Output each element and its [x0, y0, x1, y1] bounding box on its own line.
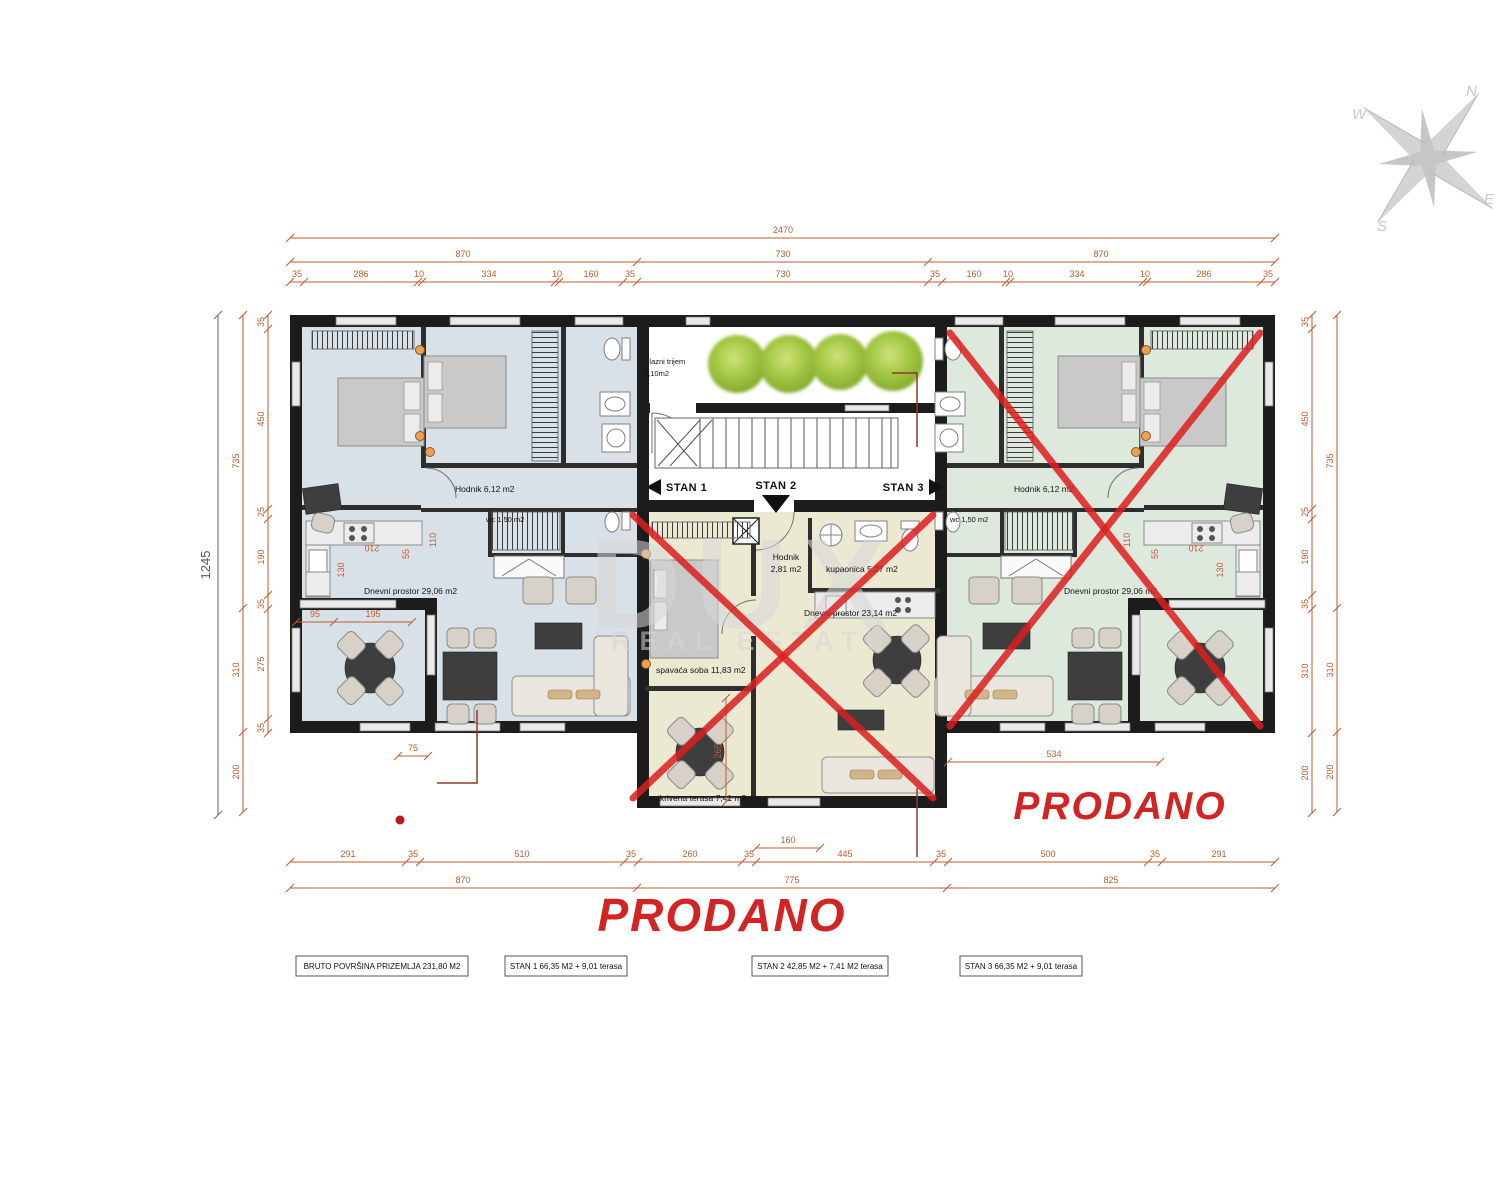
dim: 450: [256, 411, 266, 426]
dim: 310: [231, 662, 241, 677]
dim: 870: [455, 249, 470, 259]
dim: 500: [1040, 849, 1055, 859]
dim: 286: [353, 269, 368, 279]
dim: 10: [1003, 269, 1013, 279]
entrance-planter-trees: [708, 331, 923, 393]
dim: 275: [256, 656, 266, 671]
dim: 510: [514, 849, 529, 859]
lamp-icon: [1132, 448, 1141, 457]
dim: 75: [408, 743, 418, 753]
footer-labels: BRUTO POVRŠINA PRIZEMLJA 231,80 M2 STAN …: [296, 956, 1082, 976]
floor-plan-page: DUX REAL ESTATE Ulazni trijem 2,10m2 Hod…: [0, 0, 1500, 1180]
dim: 35: [936, 849, 946, 859]
armchair: [969, 577, 999, 604]
fridge: [306, 572, 330, 596]
porch-label: Ulazni trijem: [644, 357, 685, 366]
dim: 190: [256, 549, 266, 564]
desk: [302, 484, 341, 515]
dim: 35: [256, 723, 266, 733]
stan1-pointer-label: STAN 1: [666, 482, 707, 494]
porch-area: 2,10m2: [644, 369, 669, 378]
dim: 35: [625, 269, 635, 279]
dim: 35: [626, 849, 636, 859]
stan2-spavaca-label: spavaća soba 11,83 m2: [656, 665, 746, 675]
dim: 291: [340, 849, 355, 859]
tree-icon: [708, 335, 766, 393]
dim: 95: [310, 609, 320, 619]
prodano-center-label: PRODANO: [597, 889, 846, 941]
dim: 35: [256, 599, 266, 609]
dim: 35: [1300, 317, 1310, 327]
stan1-dnevni-label: Dnevni prostor 29,06 m2: [364, 586, 457, 596]
tree-icon: [812, 334, 868, 390]
footer-stan1-label: STAN 1 66,35 M2 + 9,01 terasa: [510, 962, 623, 971]
toilet: [604, 338, 620, 360]
floor-plan-drawing: DUX REAL ESTATE Ulazni trijem 2,10m2 Hod…: [0, 0, 1500, 1180]
dim: 55: [1150, 549, 1160, 559]
footer-stan3-label: STAN 3 66,35 M2 + 9,01 terasa: [965, 962, 1078, 971]
lamp-icon: [1142, 346, 1151, 355]
red-dot: [396, 816, 405, 825]
dim: 200: [1325, 764, 1335, 779]
desk: [1223, 484, 1262, 515]
dim: 735: [231, 453, 241, 468]
compass-s: S: [1377, 218, 1387, 235]
dim: 160: [583, 269, 598, 279]
stan2-hodnik-area: 2,81 m2: [771, 564, 802, 574]
dim: 35: [408, 849, 418, 859]
footer-stan2-label: STAN 2 42,85 M2 + 7,41 M2 terasa: [757, 962, 883, 971]
dim: 10: [1140, 269, 1150, 279]
dimensions-top: 2470 870 730 870 35 286 10 334 10 160 35…: [286, 225, 1279, 286]
stan1-hodnik-label: Hodnik 6,12 m2: [455, 484, 515, 494]
prodano-right-label: PRODANO: [1013, 785, 1226, 828]
dim: 450: [1300, 411, 1310, 426]
fridge: [1236, 572, 1260, 596]
dim: 870: [455, 875, 470, 885]
dim: 334: [1069, 269, 1084, 279]
dim: 35: [930, 269, 940, 279]
lamp-icon: [642, 660, 651, 669]
stan2-dnevni-label: Dnevni prostor 23,14 m2: [804, 608, 897, 618]
tv: [535, 623, 582, 649]
dim: 735: [1325, 453, 1335, 468]
dimensions-left: 1245 735 310 200 35 450 25 190 35 275 35: [198, 311, 272, 819]
dim: 160: [780, 835, 795, 845]
dim: 730: [775, 249, 790, 259]
tree-icon: [863, 331, 923, 391]
dim: 2470: [773, 225, 793, 235]
lamp-icon: [416, 346, 425, 355]
dim: 110: [1122, 533, 1132, 547]
dim: 291: [1211, 849, 1226, 859]
dim: 35: [744, 849, 754, 859]
armchair: [1012, 577, 1042, 604]
stove: [344, 523, 374, 543]
dim: 160: [966, 269, 981, 279]
stan3-wc-label: wc 1,50 m2: [949, 515, 988, 524]
compass-e: E: [1484, 191, 1495, 208]
stan3-hodnik-label: Hodnik 6,12 m2: [1014, 484, 1074, 494]
stan2-pointer-label: STAN 2: [755, 480, 796, 492]
dim: 825: [1103, 875, 1118, 885]
dim: 130: [336, 562, 346, 577]
dim: 265: [713, 743, 723, 758]
dim: 870: [1093, 249, 1108, 259]
dim: 110: [428, 533, 438, 547]
lamp-icon: [1142, 432, 1151, 441]
dim: 35: [1263, 269, 1273, 279]
dim: 35: [1150, 849, 1160, 859]
stove: [1192, 523, 1222, 543]
compass-w: W: [1352, 106, 1368, 123]
stan3-dnevni-label: Dnevni prostor 29,06 m2: [1064, 586, 1157, 596]
porch-door-gap: [650, 403, 696, 413]
stan2-terasa-label: natkrivena terasa 7,41 m2: [648, 793, 747, 803]
dim: 200: [1300, 765, 1310, 780]
dim: 210: [1188, 543, 1203, 553]
dining-table: [1068, 652, 1122, 700]
dim: 35: [292, 269, 302, 279]
stan2-hodnik-label: Hodnik: [773, 552, 800, 562]
stan3-pointer-label: STAN 3: [883, 482, 924, 494]
dim: 334: [481, 269, 496, 279]
stan2-kupaonica-label: kupaonica 5,27 m2: [826, 564, 898, 574]
dim: 260: [682, 849, 697, 859]
tree-icon: [760, 335, 818, 393]
dim: 445: [837, 849, 852, 859]
dim: 35: [1300, 599, 1310, 609]
dim: 25: [1300, 507, 1310, 517]
armchair: [523, 577, 553, 604]
lamp-icon: [416, 432, 425, 441]
dim: 35: [256, 317, 266, 327]
dimensions-right: 35 450 25 190 35 310 200 735 310 200: [1300, 311, 1341, 817]
dim: 25: [256, 507, 266, 517]
stan1-wc-label: wc 1,50 m2: [485, 515, 524, 524]
lamp-icon: [426, 448, 435, 457]
dim: 195: [365, 609, 380, 619]
footer-bruto-label: BRUTO POVRŠINA PRIZEMLJA 231,80 M2: [304, 962, 461, 971]
dim: 55: [401, 549, 411, 559]
dim: 286: [1196, 269, 1211, 279]
dimensions-bottom: 291 35 510 35 260 35 445 35 500 35 291 8…: [286, 849, 1279, 892]
compass-n: N: [1466, 83, 1477, 100]
dim: 534: [1046, 749, 1061, 759]
dim: 10: [414, 269, 424, 279]
compass-rose: N E S W: [1313, 43, 1500, 273]
dim: 210: [364, 543, 379, 553]
dim: 310: [1325, 662, 1335, 677]
dim: 775: [784, 875, 799, 885]
dim: 10: [552, 269, 562, 279]
dim: 190: [1300, 549, 1310, 564]
dim: 730: [775, 269, 790, 279]
dim: 200: [231, 764, 241, 779]
dim: 130: [1215, 562, 1225, 577]
dim-total-height: 1245: [198, 551, 213, 580]
staircase: [655, 418, 898, 468]
dim: 310: [1300, 663, 1310, 678]
dining-table: [443, 652, 497, 700]
